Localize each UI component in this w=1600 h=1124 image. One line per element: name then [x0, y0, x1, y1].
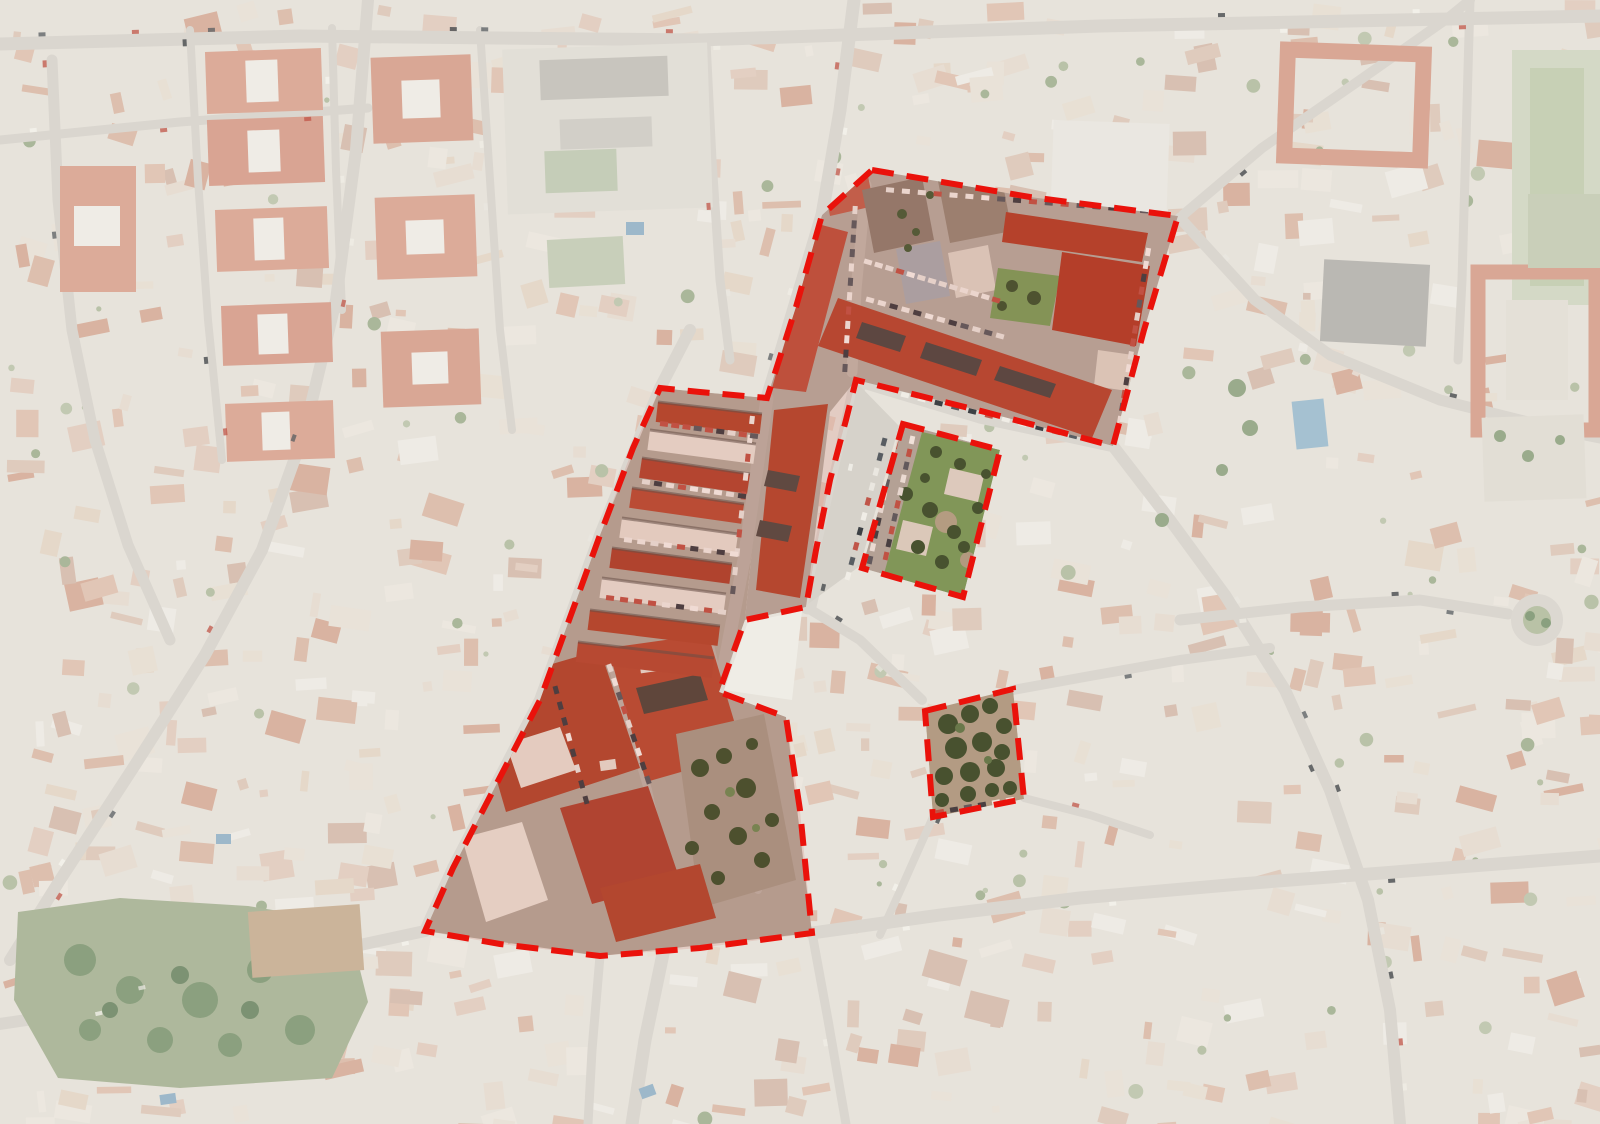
- satellite-map-view[interactable]: [0, 0, 1600, 1124]
- satellite-map: [0, 0, 1600, 1124]
